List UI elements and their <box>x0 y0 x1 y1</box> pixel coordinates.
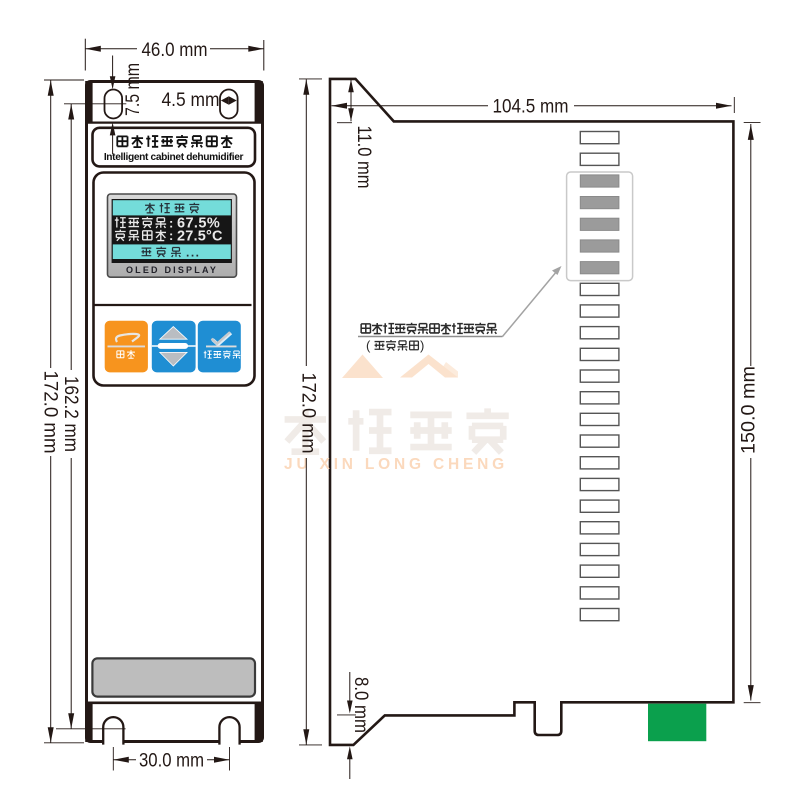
svg-text:27.5°C: 27.5°C <box>177 228 223 244</box>
svg-text:7.5 mm: 7.5 mm <box>122 63 144 116</box>
svg-text:Intelligent cabinet dehumidifi: Intelligent cabinet dehumidifier <box>104 152 244 163</box>
svg-text:150.0 mm: 150.0 mm <box>738 366 760 454</box>
svg-text:4.5 mm: 4.5 mm <box>162 89 220 111</box>
svg-text::: : <box>169 228 173 243</box>
svg-text:8.0 mm: 8.0 mm <box>350 677 372 733</box>
svg-text:...: ... <box>186 246 201 260</box>
svg-text:): ) <box>420 338 424 353</box>
svg-text:162.2 mm: 162.2 mm <box>60 376 82 452</box>
svg-text:172.0 mm: 172.0 mm <box>40 371 62 454</box>
svg-text:104.5 mm: 104.5 mm <box>493 96 569 118</box>
svg-text:JU XIN LONG CHENG: JU XIN LONG CHENG <box>284 456 508 473</box>
svg-text:(: ( <box>366 338 371 353</box>
svg-text:11.0 mm: 11.0 mm <box>353 126 375 189</box>
svg-text:172.0 mm: 172.0 mm <box>298 373 320 454</box>
svg-text:OLED DISPLAY: OLED DISPLAY <box>126 265 218 275</box>
svg-text:30.0 mm: 30.0 mm <box>139 750 204 772</box>
svg-text:46.0 mm: 46.0 mm <box>142 39 208 61</box>
